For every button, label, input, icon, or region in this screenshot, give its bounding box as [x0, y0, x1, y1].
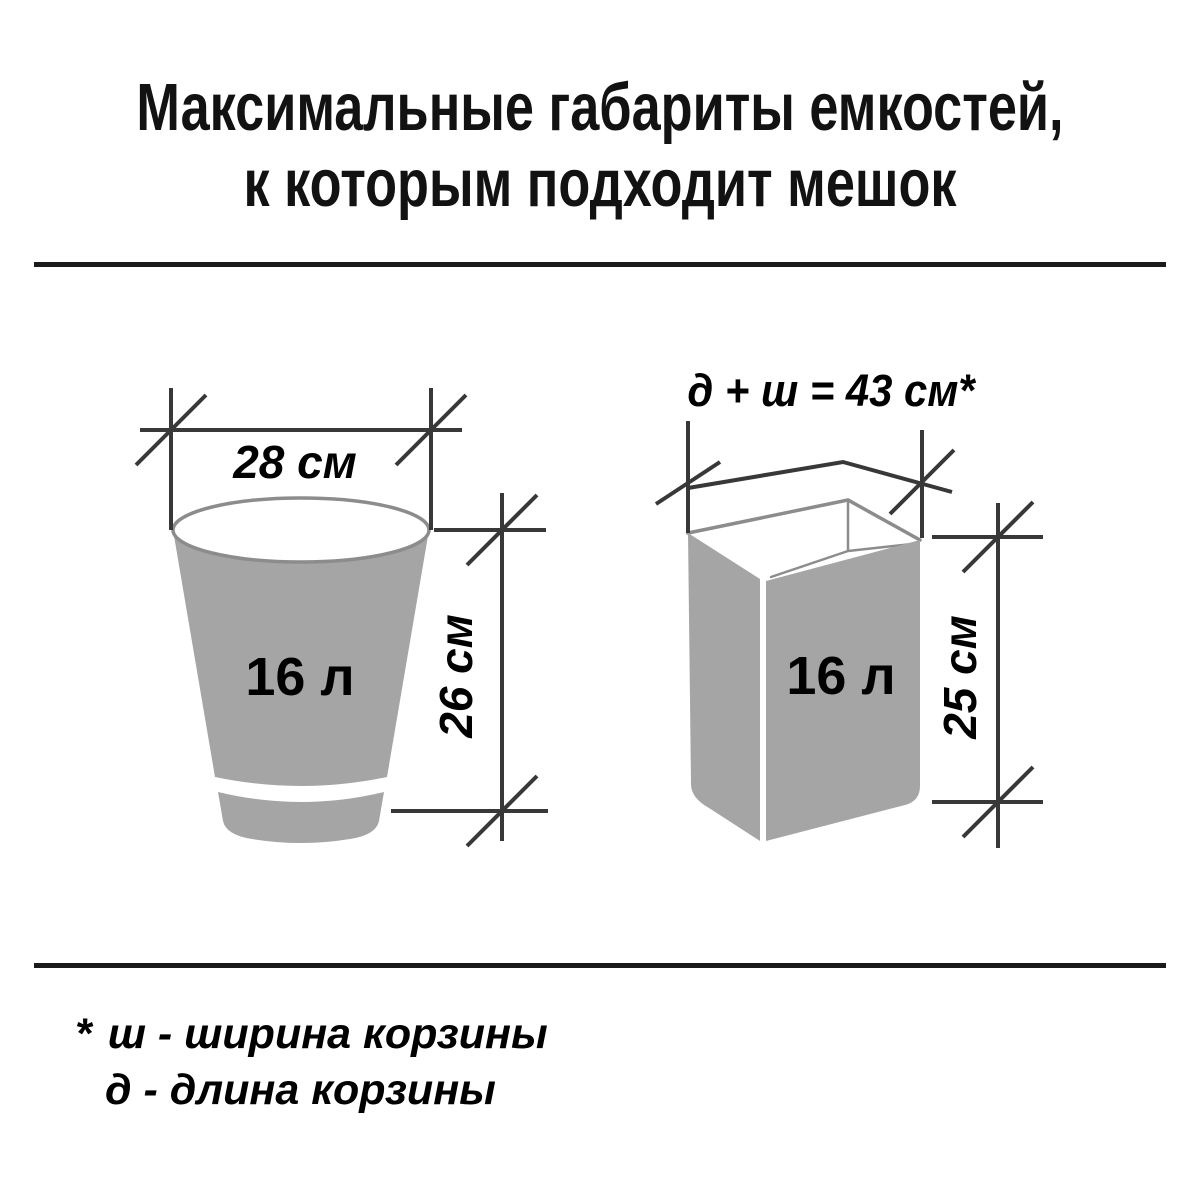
right-height-label: 25 см	[933, 615, 987, 739]
infographic-canvas: Максимальные габариты емкостей, к которы…	[0, 0, 1200, 1200]
footnote: *ш - ширина корзины д - длина корзины	[75, 1006, 548, 1118]
bin-left-face	[688, 533, 760, 841]
footnote-width-legend: ш - ширина корзины	[108, 1010, 548, 1058]
footnote-line-1: *ш - ширина корзины	[75, 1006, 548, 1062]
left-height-label: 26 см	[429, 614, 483, 738]
right-volume-label: 16 л	[786, 645, 895, 707]
right-perimeter-label: д + ш = 43 см*	[687, 365, 974, 417]
left-width-label: 28 см	[233, 435, 357, 489]
bucket-base	[218, 792, 384, 843]
left-volume-label: 16 л	[245, 646, 354, 708]
footnote-length-legend: д - длина корзины	[75, 1062, 548, 1118]
bucket-rim	[173, 498, 429, 562]
footnote-asterisk: *	[75, 1006, 92, 1062]
